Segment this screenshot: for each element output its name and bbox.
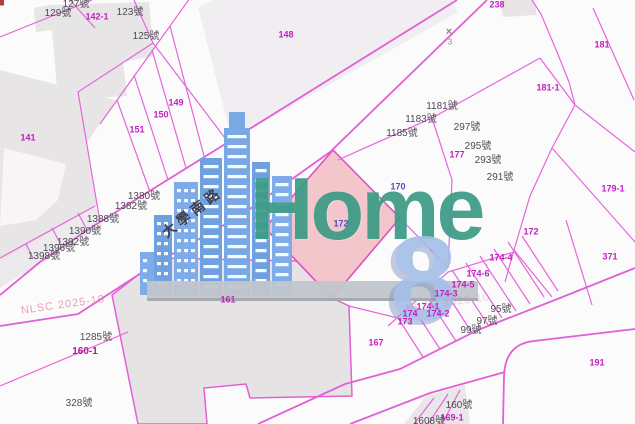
logo-number-eight: 8 (390, 210, 457, 348)
house-marker-icon[interactable] (0, 0, 7, 7)
map-canvas[interactable]: 大學南路 Home 8 142-1148238181181-1149150151… (0, 0, 635, 424)
control-point-icon: × (446, 26, 452, 38)
control-point-number: 3 (448, 38, 452, 47)
building-footprint (500, 0, 537, 17)
